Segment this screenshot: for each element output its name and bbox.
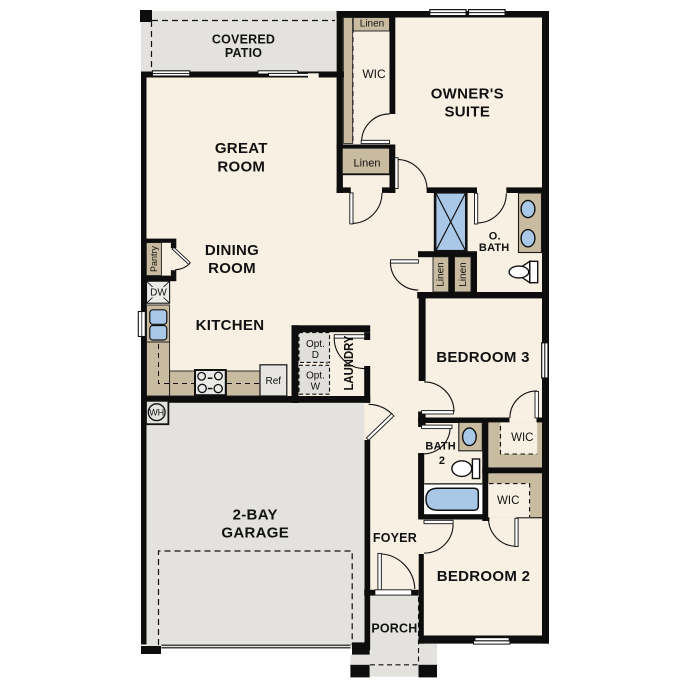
svg-text:WIC: WIC — [362, 67, 386, 81]
svg-text:BEDROOM 2: BEDROOM 2 — [437, 568, 531, 585]
svg-text:DINING: DINING — [205, 242, 259, 259]
svg-text:O.: O. — [489, 231, 501, 243]
svg-text:KITCHEN: KITCHEN — [196, 317, 265, 334]
svg-text:WIC: WIC — [497, 495, 519, 507]
svg-text:Linen: Linen — [436, 262, 447, 286]
svg-text:SUITE: SUITE — [444, 104, 490, 121]
svg-text:DW: DW — [150, 288, 167, 299]
svg-text:PORCH: PORCH — [371, 621, 417, 635]
svg-text:GREAT: GREAT — [215, 140, 268, 157]
svg-text:Opt.: Opt. — [306, 339, 325, 350]
svg-text:2: 2 — [439, 455, 445, 467]
svg-text:FOYER: FOYER — [373, 531, 417, 545]
svg-text:2-BAY: 2-BAY — [233, 507, 278, 524]
svg-text:Opt.: Opt. — [306, 371, 325, 382]
svg-text:BEDROOM 3: BEDROOM 3 — [436, 349, 530, 366]
svg-text:Ref: Ref — [266, 376, 282, 387]
svg-text:BATH: BATH — [479, 242, 510, 254]
svg-text:PATIO: PATIO — [225, 46, 262, 60]
svg-text:Linen: Linen — [360, 19, 384, 30]
svg-text:WIC: WIC — [511, 432, 533, 444]
svg-text:Linen: Linen — [354, 157, 381, 169]
svg-text:W: W — [311, 381, 321, 392]
svg-text:Linen: Linen — [458, 262, 469, 286]
svg-text:WH: WH — [149, 407, 164, 417]
svg-text:Pantry: Pantry — [149, 245, 159, 272]
svg-text:LAUNDRY: LAUNDRY — [341, 335, 356, 390]
svg-text:OWNER'S: OWNER'S — [431, 86, 504, 103]
svg-text:COVERED: COVERED — [212, 33, 275, 47]
svg-text:GARAGE: GARAGE — [221, 525, 289, 542]
svg-text:ROOM: ROOM — [217, 158, 265, 175]
svg-text:BATH: BATH — [425, 441, 456, 453]
svg-text:ROOM: ROOM — [208, 260, 256, 277]
svg-text:D: D — [312, 350, 319, 361]
